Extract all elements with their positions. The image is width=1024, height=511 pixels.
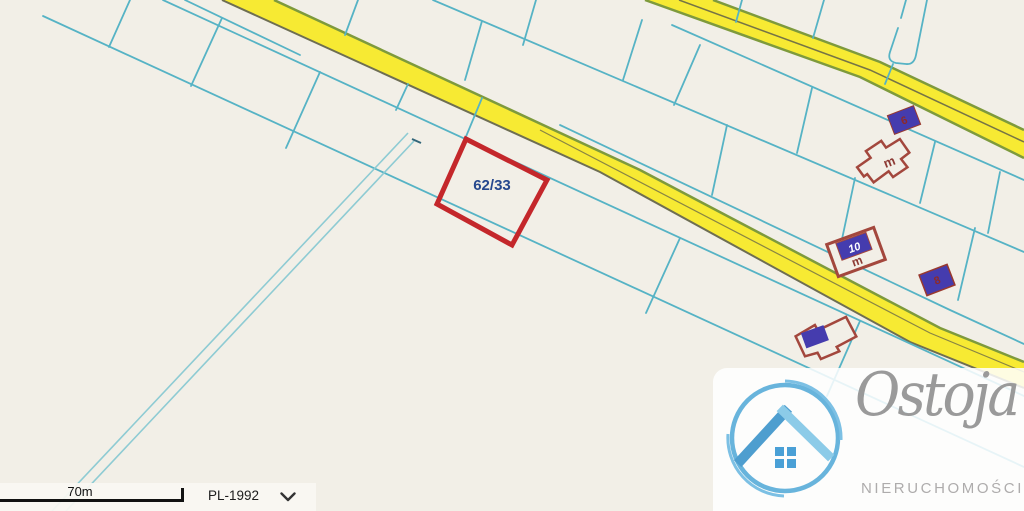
brand-subtitle: NIERUCHOMOŚCI	[861, 480, 1024, 497]
map-viewport[interactable]: m 10 m 6 8	[0, 0, 1024, 511]
map-control-bar: 70m PL-1992	[0, 483, 316, 511]
scale-bar-label: 70m	[0, 484, 160, 499]
building-small	[794, 313, 859, 364]
crs-selector[interactable]: PL-1992	[198, 483, 308, 511]
parcel-62-33-label: 62/33	[473, 177, 511, 194]
road-main	[222, 0, 1024, 388]
scale-bar-tick	[181, 488, 184, 502]
building-10m: 10 m	[827, 227, 886, 276]
scale-bar	[0, 499, 184, 502]
logo-house-icon	[717, 368, 853, 511]
address-badge-6: 6	[887, 106, 920, 135]
ditch-lines	[52, 133, 421, 511]
address-badge-8: 8	[919, 264, 955, 295]
road-secondary	[645, 0, 1024, 158]
brand-name: Ostoja	[855, 360, 1024, 430]
parcel-62-33[interactable]: 62/33	[437, 139, 547, 245]
watermark-panel: Ostoja NIERUCHOMOŚCI	[713, 368, 1024, 511]
crs-selector-value: PL-1992	[208, 488, 259, 503]
chevron-down-icon[interactable]	[280, 492, 296, 502]
building-m: m	[851, 133, 915, 188]
